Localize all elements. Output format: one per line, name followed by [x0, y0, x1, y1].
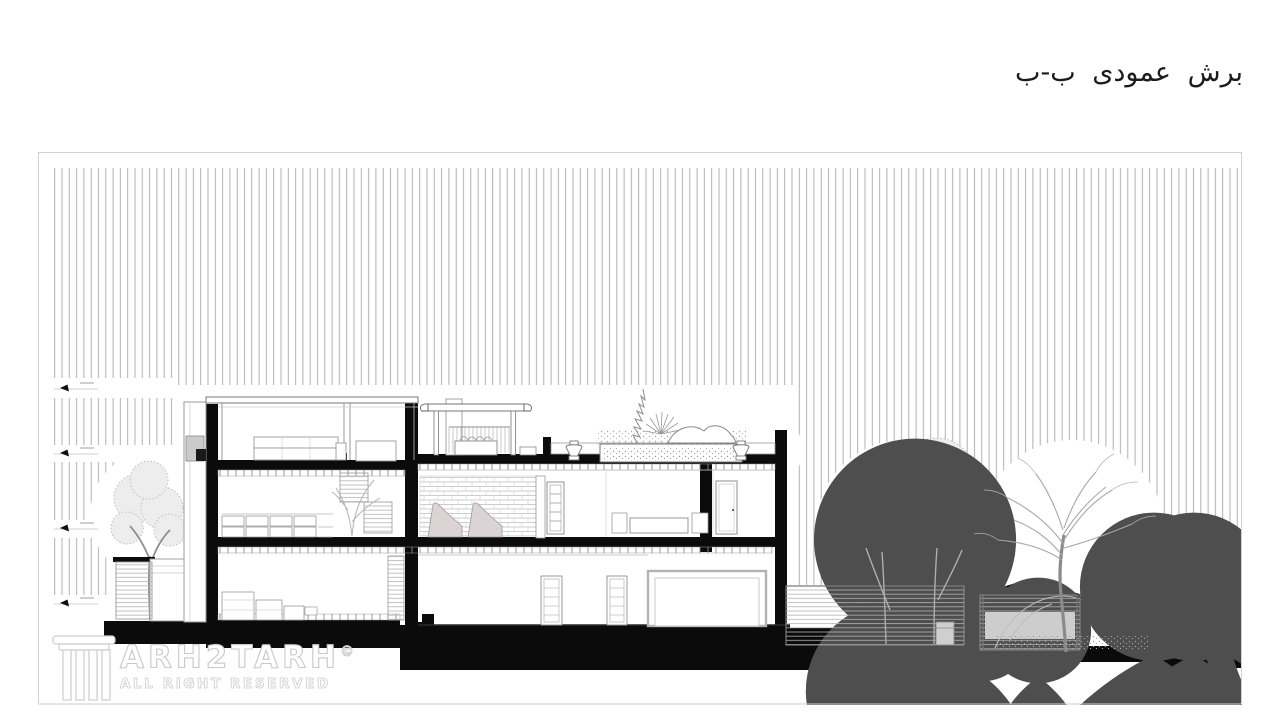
stair-screen-lower	[364, 502, 392, 533]
brand-tagline: ALL RIGHT RESERVED	[120, 676, 358, 692]
level-marker	[54, 382, 98, 392]
page: برش عمودی ب-ب	[0, 0, 1280, 720]
bed	[630, 518, 688, 533]
level-marker	[54, 447, 98, 457]
stair-screen-ground	[388, 556, 404, 620]
column-logo-icon	[52, 624, 116, 702]
level-marker	[54, 597, 98, 607]
armchair	[356, 441, 396, 461]
street-fence	[116, 562, 152, 619]
drawing-panel	[38, 152, 1242, 705]
stair-screen-upper	[340, 473, 368, 502]
deck-chair	[936, 622, 954, 645]
watermark: ARH2TARH© ALL RIGHT RESERVED	[52, 624, 358, 702]
ground-cover	[996, 636, 1148, 650]
copyright-mark: ©	[340, 644, 358, 660]
brand-name: ARH2TARH©	[120, 636, 358, 673]
section-drawing	[38, 152, 1242, 705]
section-title: برش عمودی ب-ب	[1015, 57, 1243, 88]
sofa	[254, 437, 346, 460]
tall-window-1	[541, 576, 562, 625]
tall-window-2	[607, 576, 627, 625]
